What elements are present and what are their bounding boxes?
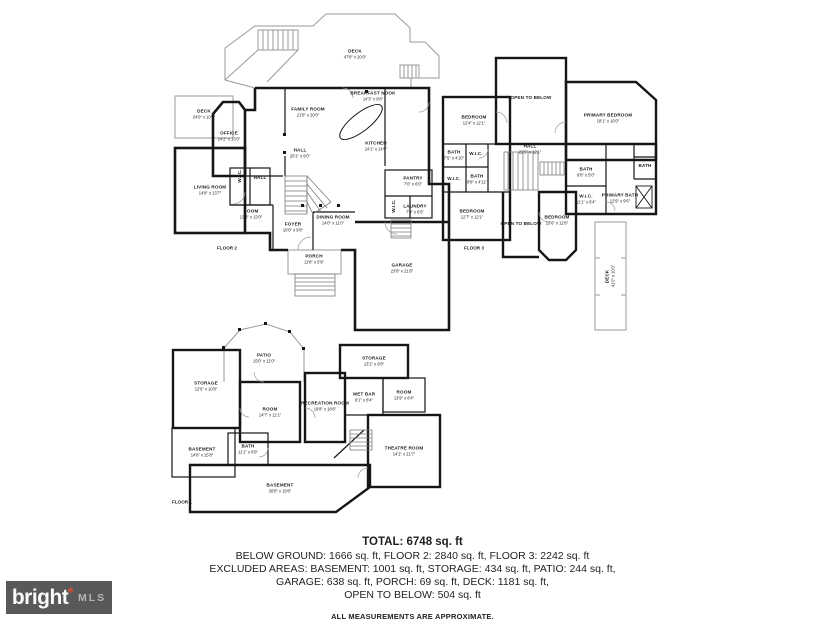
floorplan-floor3: FLOOR 3 OPEN TO BELOWPRIMARY BEDROOM18'1… xyxy=(438,52,663,337)
stairs-icon xyxy=(504,152,564,190)
brightmls-star-icon: ✱ xyxy=(67,586,74,595)
floor-label: FLOOR 1 xyxy=(172,500,192,505)
deck-outline xyxy=(175,14,439,274)
floor-label: FLOOR 2 xyxy=(217,246,237,251)
interior-walls xyxy=(172,378,425,477)
brightmls-mls-text: MLS xyxy=(78,592,106,604)
door-arcs xyxy=(233,88,429,250)
patio-outline xyxy=(224,324,304,382)
shower-icon xyxy=(636,186,652,208)
floorplan-floor2: FLOOR 2 DECK47'8" x 20'0"DECK24'0" x 10'… xyxy=(163,6,455,336)
floorplan-floor3-drawing xyxy=(438,52,663,337)
floor-label: FLOOR 3 xyxy=(464,246,484,251)
summary-line: EXCLUDED AREAS: BASEMENT: 1001 sq. ft, S… xyxy=(0,563,825,576)
door-arcs xyxy=(479,112,615,222)
exterior-walls xyxy=(443,58,656,260)
floorplan-flyer: FLOOR 2 DECK47'8" x 20'0"DECK24'0" x 10'… xyxy=(0,0,825,619)
floorplan-floor1: FLOOR 1 PATIO15'0" x 11'0"STORAGE12'6" x… xyxy=(168,318,463,528)
floorplan-floor1-drawing xyxy=(168,318,463,528)
column-dots xyxy=(283,90,368,207)
area-summary: TOTAL: 6748 sq. ft BELOW GROUND: 1666 sq… xyxy=(0,536,825,619)
floorplan-floor2-drawing xyxy=(163,6,455,336)
exterior-walls xyxy=(175,88,449,330)
deck-outline xyxy=(595,222,626,330)
disclaimer-line: ALL MEASUREMENTS ARE APPROXIMATE. xyxy=(0,612,825,619)
total-area-line: TOTAL: 6748 sq. ft xyxy=(0,536,825,548)
kitchen-island-icon xyxy=(335,99,387,145)
summary-line: BELOW GROUND: 1666 sq. ft, FLOOR 2: 2840… xyxy=(0,550,825,563)
interior-walls xyxy=(230,88,432,250)
summary-line: GARAGE: 638 sq. ft, PORCH: 69 sq. ft, DE… xyxy=(0,576,825,589)
summary-line: OPEN TO BELOW: 504 sq. ft xyxy=(0,589,825,602)
stairs-icon xyxy=(285,176,411,296)
brightmls-wordmark: bright xyxy=(12,587,68,608)
brightmls-logo: bright✱MLS xyxy=(6,581,112,614)
